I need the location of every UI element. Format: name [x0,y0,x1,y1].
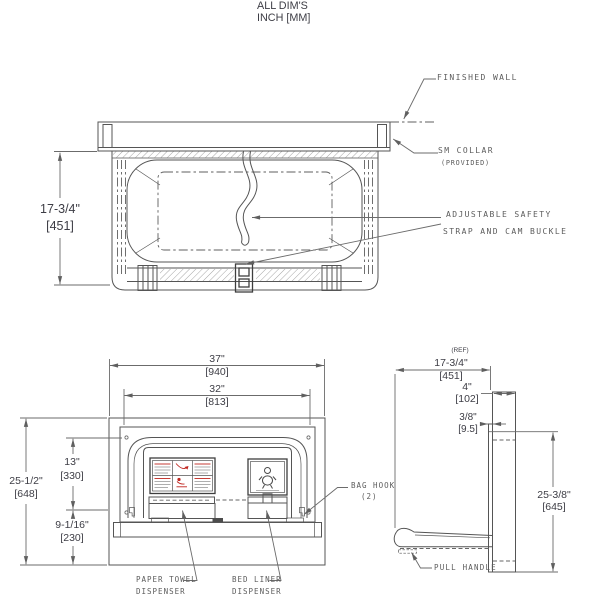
bed-liner-label: BED LINER DISPENSER [232,574,282,597]
dim-flange-in: 3/8" [453,412,483,424]
drawing-linework: .ln{stroke:#555;stroke-width:1;fill:none… [0,0,608,608]
bag-hook-leader [304,488,348,515]
open-bed-profile [394,528,492,553]
recessed-box [493,392,516,572]
dim-open-depth-in: 17-3/4" [33,201,87,218]
dim-lower-height-text: 9-1/16" [230] [46,519,98,545]
paper-towel-label-line2: DISPENSER [136,586,197,598]
bag-hook-right [300,508,305,517]
dim-overall-width-in: 37" [194,353,240,366]
dim-overall-height-text: 25-1/2" [648] [3,475,49,500]
baby-changing-station-drawing: .ln{stroke:#555;stroke-width:1;fill:none… [0,0,608,608]
pull-handle-label: PULL HANDLE [434,562,497,574]
dim-lower-height-mm: [230] [46,532,98,545]
dim-overall-width-mm: [940] [194,366,240,379]
dim-open-depth-text: 17-3/4" [451] [33,201,87,234]
baby-symbol-label [248,459,287,495]
dim-overall-width-text: 37" [940] [194,353,240,378]
paper-towel-leader [183,511,198,581]
safety-strap-label-line2: STRAP AND CAM BUCKLE [443,226,567,238]
safety-strap-label-line1: ADJUSTABLE SAFETY [446,209,552,221]
bag-hook-label-line1: BAG HOOK [351,480,395,491]
sm-collar-outline [98,122,390,151]
dim-panel-height-text: 25-3/8" [645] [533,489,575,513]
dim-door-width-mm: [813] [194,396,240,409]
top-view-open-bed [54,79,441,292]
bed-liner-leader [267,511,282,581]
dim-flange-mm: [9.5] [453,424,483,436]
bag-hook-label-line2: (2) [361,491,395,502]
instruction-label [150,458,215,494]
paper-towel-label: PAPER TOWEL DISPENSER [136,574,197,597]
bed-liner-label-line1: BED LINER [232,574,282,586]
dim-recess-depth-text: 4" [102] [452,381,482,405]
dim-upper-height-text: 13" [330] [49,456,95,483]
paper-towel-slot [149,497,215,519]
dim-panel-height-in: 25-3/8" [533,489,575,501]
warning-child-icon [177,478,188,487]
bag-hook-label: BAG HOOK (2) [351,480,395,502]
hidden-wall-lines [118,160,373,276]
recess-flange [109,418,325,565]
dim-ref-note: (REF) [444,347,476,355]
dim-side-depth-text: 17-3/4" [451] [427,357,475,382]
dim-recess-depth-in: 4" [452,381,482,393]
dim-panel-height-mm: [645] [533,501,575,513]
pull-handle-leader [412,553,433,569]
dim-overall-height-in: 25-1/2" [3,475,49,488]
paper-towel-label-line1: PAPER TOWEL [136,574,197,586]
bottom-tray [114,523,322,538]
pull-handle-profile [399,550,417,553]
dim-upper-height-mm: [330] [49,470,95,484]
finished-wall-label: FINISHED WALL [437,72,518,84]
front-rail [127,264,362,292]
units-note-line2: INCH [MM] [257,13,310,25]
dim-door-width-text: 32" [813] [194,383,240,408]
strap-bracket-right [322,266,341,291]
sm-collar-note: (PROVIDED) [441,157,490,169]
sm-collar-leader [393,139,438,153]
bed-shell-outline [112,151,378,290]
strap-bracket-left [138,266,157,291]
finished-wall-leader [404,79,436,119]
dim-upper-height-in: 13" [49,456,95,470]
dim-flange-text: 3/8" [9.5] [453,412,483,435]
buckle-leader [246,224,441,264]
dim-lower-height-in: 9-1/16" [46,519,98,532]
front-flange [489,424,493,572]
dim-recess-depth-mm: [102] [452,393,482,405]
dim-open-depth-mm: [451] [33,218,87,235]
units-note: ALL DIM'S INCH [MM] [257,1,310,24]
bed-liner-label-line2: DISPENSER [232,586,282,598]
dim-side-depth-in: 17-3/4" [427,357,475,370]
safety-strap [236,152,257,246]
dim-overall-height-mm: [648] [3,488,49,501]
sm-collar-label: SM COLLAR [438,145,494,157]
baby-icon [259,468,276,489]
dim-door-width-in: 32" [194,383,240,396]
units-note-line1: ALL DIM'S [257,1,310,13]
